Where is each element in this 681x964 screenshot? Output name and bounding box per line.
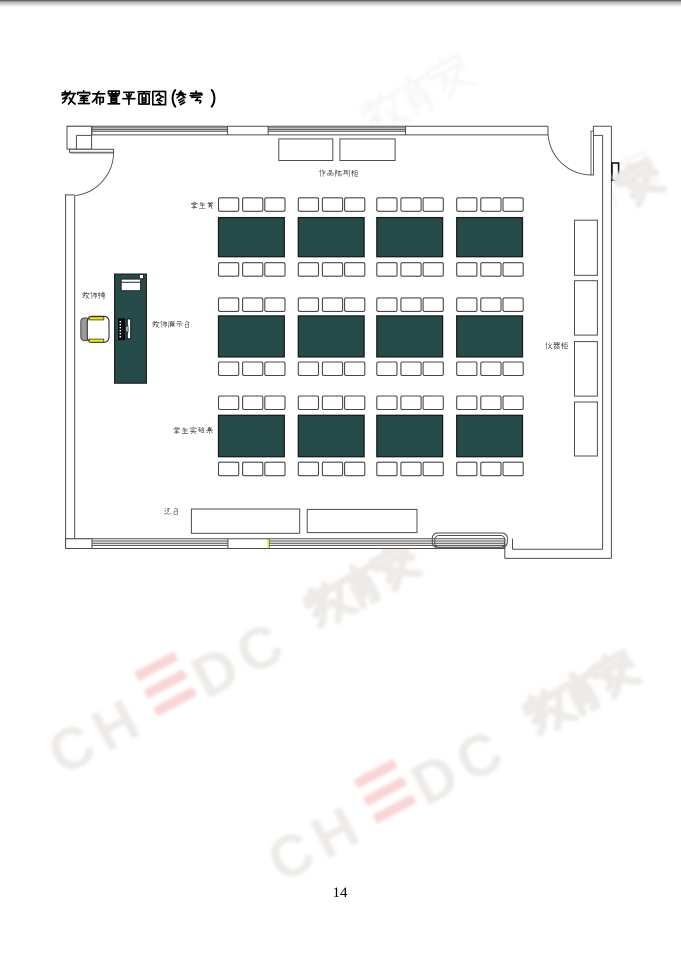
svg-text:CH: CH (38, 683, 157, 787)
svg-text:DC: DC (401, 714, 520, 818)
svg-text:DC: DC (182, 607, 301, 711)
svg-text:CH: CH (257, 791, 376, 895)
svg-text:14: 14 (333, 885, 349, 901)
